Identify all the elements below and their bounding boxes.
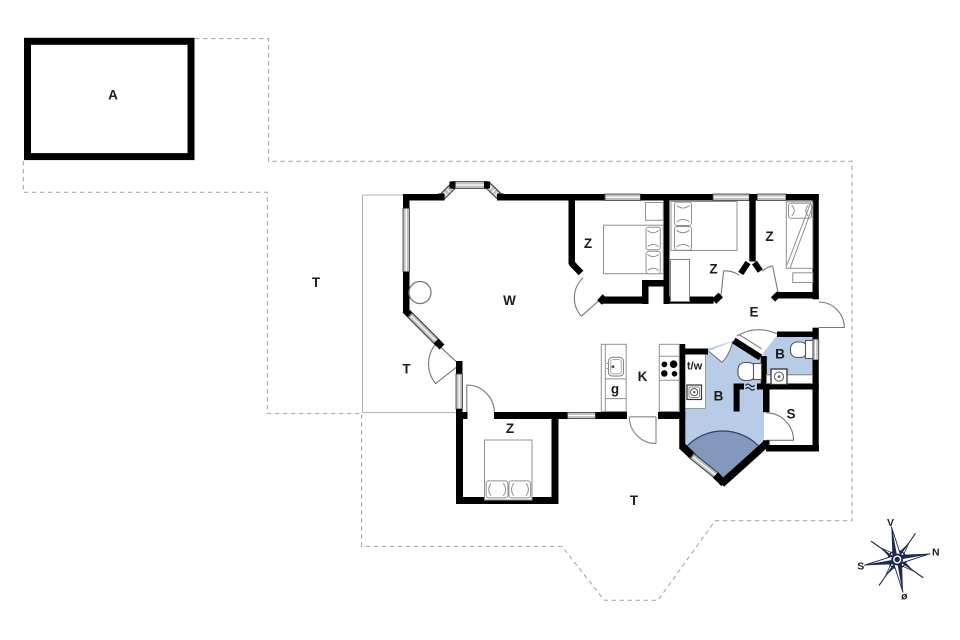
svg-text:t/w: t/w — [687, 361, 703, 373]
svg-text:V: V — [887, 517, 894, 529]
svg-text:Z: Z — [506, 421, 514, 436]
svg-text:E: E — [749, 305, 758, 320]
svg-text:T: T — [630, 493, 639, 508]
svg-text:S: S — [786, 407, 795, 422]
svg-text:T: T — [312, 275, 321, 290]
svg-text:W: W — [503, 293, 516, 308]
svg-text:B: B — [775, 347, 785, 362]
svg-text:Z: Z — [709, 262, 717, 277]
svg-text:S: S — [857, 560, 864, 572]
svg-text:N: N — [932, 547, 940, 559]
svg-text:K: K — [638, 369, 648, 384]
svg-text:B: B — [714, 389, 724, 404]
svg-text:A: A — [108, 88, 118, 103]
svg-text:T: T — [402, 362, 411, 377]
svg-text:ø: ø — [901, 591, 908, 603]
svg-text:g: g — [611, 382, 619, 397]
svg-text:Z: Z — [765, 229, 773, 244]
svg-text:Z: Z — [584, 236, 592, 251]
